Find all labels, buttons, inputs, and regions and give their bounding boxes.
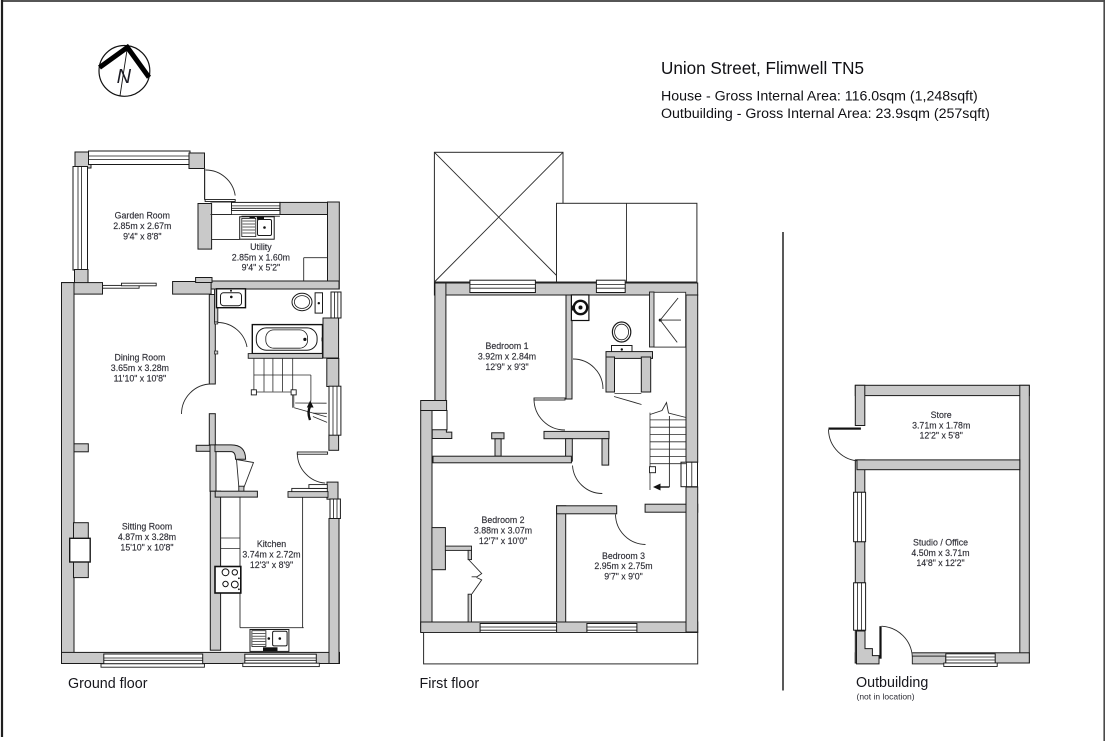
- svg-text:11'10" x 10'8": 11'10" x 10'8": [114, 373, 167, 383]
- svg-text:12'2" x 5'8": 12'2" x 5'8": [920, 431, 963, 441]
- svg-text:9'4" x 8'8": 9'4" x 8'8": [123, 231, 161, 241]
- svg-text:9'4" x 5'2": 9'4" x 5'2": [242, 263, 280, 273]
- svg-text:3.71m x 1.78m: 3.71m x 1.78m: [912, 420, 970, 430]
- svg-text:4.87m x 3.28m: 4.87m x 3.28m: [118, 532, 176, 542]
- svg-text:9'7" x 9'0": 9'7" x 9'0": [604, 571, 642, 581]
- svg-text:Dining Room: Dining Room: [114, 353, 165, 363]
- svg-text:House - Gross Internal Area: 1: House - Gross Internal Area: 116.0sqm (1…: [661, 88, 978, 104]
- svg-text:3.92m x 2.84m: 3.92m x 2.84m: [478, 352, 536, 362]
- svg-text:4.50m x 3.71m: 4.50m x 3.71m: [911, 548, 969, 558]
- svg-text:Bedroom 1: Bedroom 1: [485, 341, 528, 351]
- svg-text:Bedroom 2: Bedroom 2: [481, 515, 524, 525]
- svg-text:2.85m x 2.67m: 2.85m x 2.67m: [113, 221, 171, 231]
- svg-text:Sitting Room: Sitting Room: [122, 522, 172, 532]
- svg-text:14'8" x 12'2": 14'8" x 12'2": [916, 558, 964, 568]
- svg-text:Bedroom 3: Bedroom 3: [602, 551, 645, 561]
- svg-text:Ground floor: Ground floor: [68, 676, 148, 692]
- svg-text:15'10" x 10'8": 15'10" x 10'8": [120, 542, 173, 552]
- svg-text:3.88m x 3.07m: 3.88m x 3.07m: [474, 526, 532, 536]
- svg-text:Store: Store: [931, 410, 952, 420]
- svg-text:Studio / Office: Studio / Office: [913, 537, 968, 547]
- svg-text:Utility: Utility: [250, 242, 272, 252]
- svg-text:2.95m x 2.75m: 2.95m x 2.75m: [594, 561, 652, 571]
- svg-text:3.74m x 2.72m: 3.74m x 2.72m: [242, 550, 300, 560]
- svg-text:12'3" x 8'9": 12'3" x 8'9": [250, 560, 293, 570]
- svg-text:First floor: First floor: [420, 676, 480, 692]
- svg-text:Outbuilding - Gross Internal A: Outbuilding - Gross Internal Area: 23.9s…: [661, 106, 990, 122]
- svg-text:12'7" x 10'0": 12'7" x 10'0": [479, 536, 527, 546]
- svg-text:Union Street, Flimwell TN5: Union Street, Flimwell TN5: [661, 59, 864, 78]
- svg-text:12'9" x 9'3": 12'9" x 9'3": [485, 362, 528, 372]
- svg-text:Kitchen: Kitchen: [257, 539, 286, 549]
- svg-text:2.85m x 1.60m: 2.85m x 1.60m: [232, 252, 290, 262]
- svg-text:N: N: [117, 66, 132, 88]
- svg-text:Garden Room: Garden Room: [115, 211, 170, 221]
- svg-text:Outbuilding: Outbuilding: [856, 675, 928, 691]
- svg-text:3.65m x 3.28m: 3.65m x 3.28m: [111, 363, 169, 373]
- svg-text:(not in location): (not in location): [857, 692, 915, 702]
